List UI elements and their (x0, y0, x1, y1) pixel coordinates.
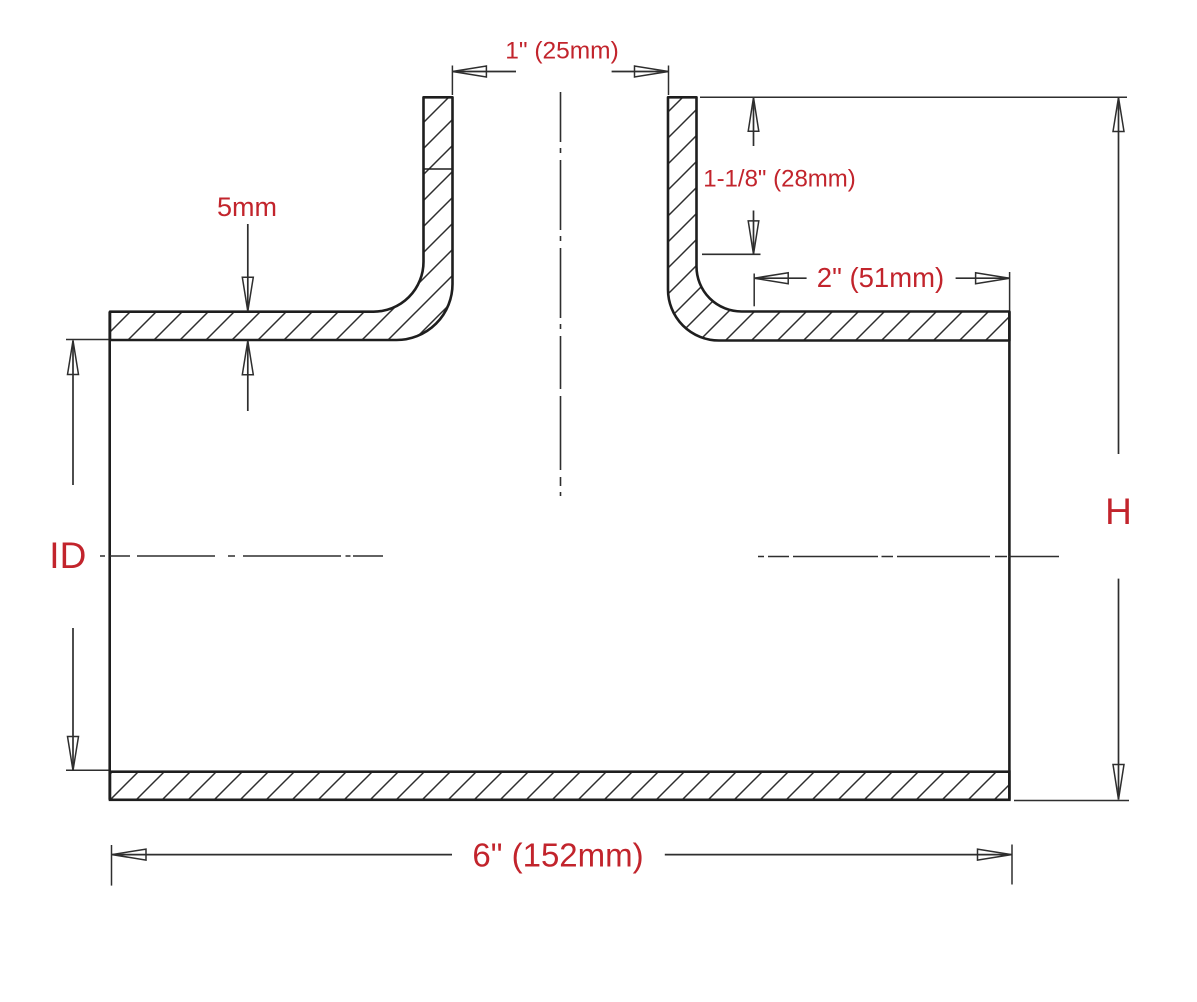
svg-text:H: H (1105, 491, 1132, 532)
svg-text:1" (25mm): 1" (25mm) (505, 38, 619, 65)
svg-text:ID: ID (49, 535, 86, 576)
svg-text:6" (152mm): 6" (152mm) (472, 837, 643, 874)
svg-text:2" (51mm): 2" (51mm) (817, 262, 944, 293)
svg-text:5mm: 5mm (217, 192, 277, 222)
svg-text:1-1/8" (28mm): 1-1/8" (28mm) (703, 165, 856, 192)
